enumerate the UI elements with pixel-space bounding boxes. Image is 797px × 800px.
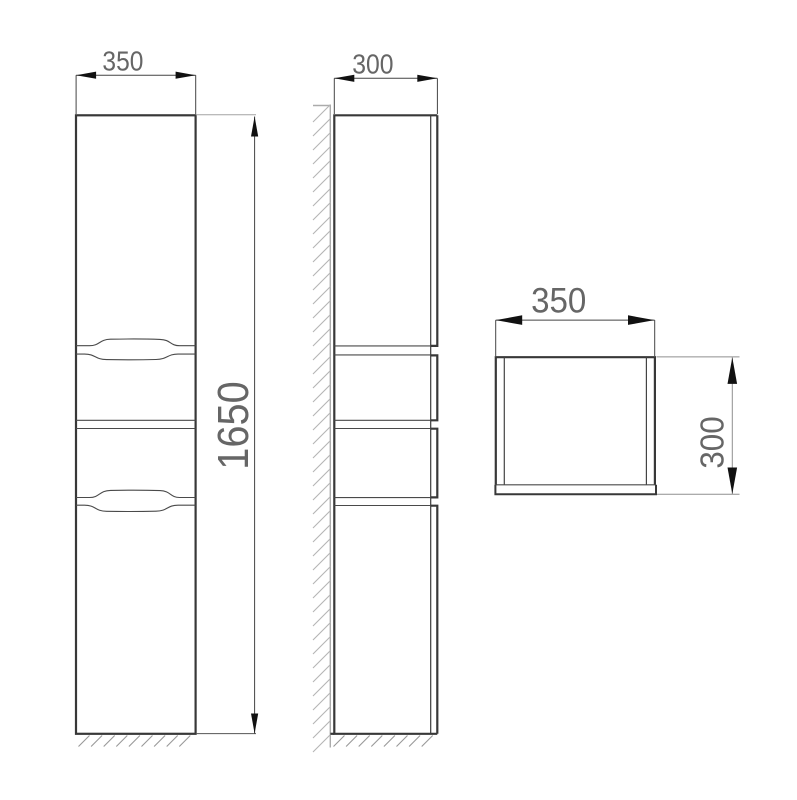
svg-text:300: 300 [693, 416, 730, 468]
svg-text:350: 350 [531, 281, 586, 320]
svg-text:1650: 1650 [208, 381, 257, 469]
svg-text:300: 300 [352, 48, 393, 80]
svg-text:350: 350 [102, 45, 143, 77]
